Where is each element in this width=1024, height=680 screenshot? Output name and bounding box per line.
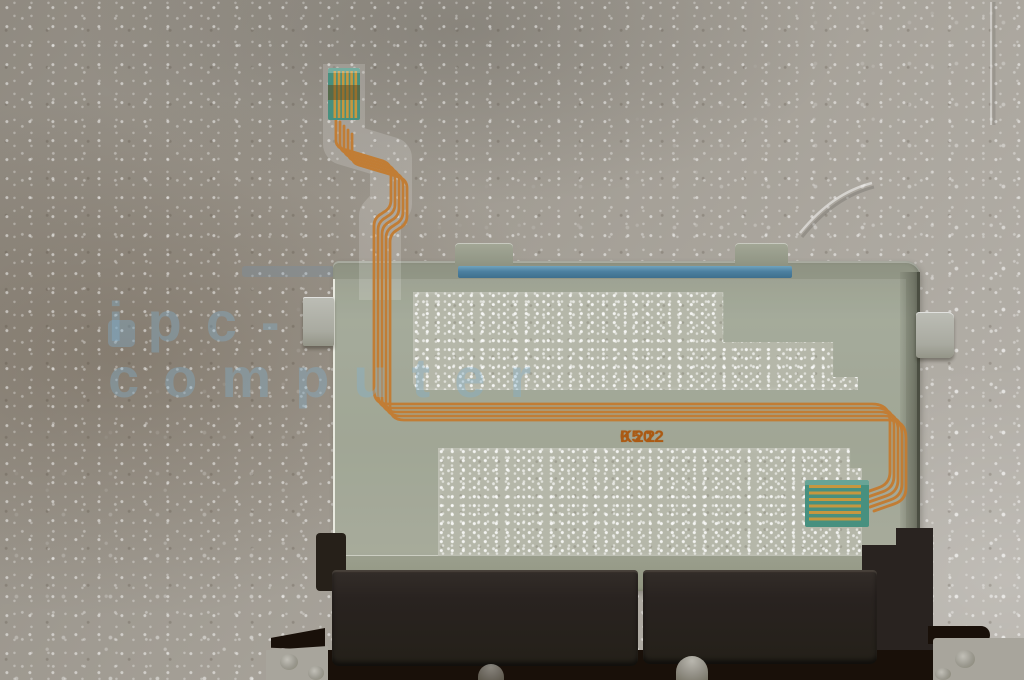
foam-creases [800,2,994,237]
bracket-dimple [280,654,298,670]
screw-boss-center [676,656,708,680]
flex-code-text: 0502 [620,427,666,447]
bracket-dimple [955,650,975,668]
flex-connector-top [328,68,360,120]
touchpad-button-right [643,570,877,664]
bracket-dimple [935,668,951,680]
flex-connector-bottom [805,480,869,527]
bracket-dimple [308,666,324,680]
bracket-corner-left [266,646,328,680]
touchpad-button-left [332,570,638,666]
photo-scene: K22 0502 ipc-computer [0,0,1024,680]
bracket-corner-right [933,638,1024,680]
